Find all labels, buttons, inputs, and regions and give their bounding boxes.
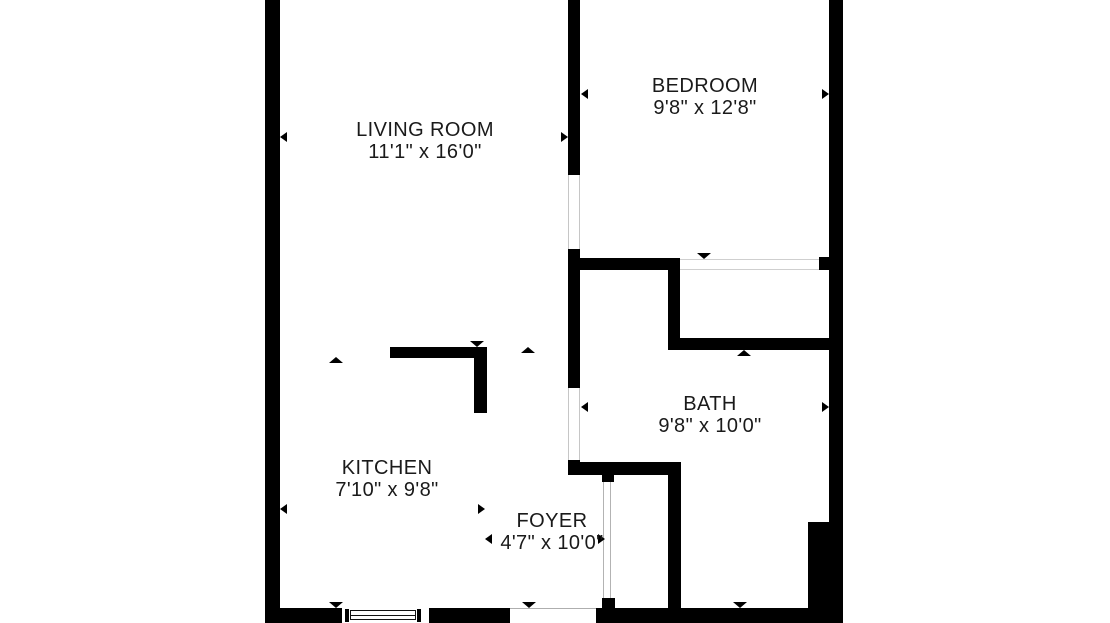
- room-name: KITCHEN: [287, 457, 487, 479]
- floor-plan: LIVING ROOM 11'1" x 16'0" BEDROOM 9'8" x…: [0, 0, 1110, 623]
- room-name: LIVING ROOM: [305, 119, 545, 141]
- wall-exterior-left: [265, 0, 280, 623]
- wall-foyer-closet-jamb-top: [602, 470, 614, 482]
- wall-kitchen-peninsula-vertical: [474, 347, 487, 413]
- dim-arrow-up-icon: [737, 350, 751, 356]
- window-glass: [350, 610, 416, 620]
- room-label-bath: BATH 9'8" x 10'0": [610, 393, 810, 437]
- wall-closet-front-stub: [568, 258, 680, 270]
- wall-utility-mass: [808, 522, 843, 623]
- wall-foyer-top: [568, 462, 681, 475]
- dim-arrow-up-icon: [521, 347, 535, 353]
- dim-arrow-right-icon: [822, 89, 829, 99]
- wall-divider-upper: [568, 0, 580, 175]
- dim-arrow-left-icon: [280, 504, 287, 514]
- dim-arrow-left-icon: [581, 89, 588, 99]
- room-name: BEDROOM: [605, 75, 805, 97]
- room-name: FOYER: [452, 510, 652, 532]
- wall-closet-jamb-right: [819, 257, 831, 270]
- dim-arrow-right-icon: [822, 402, 829, 412]
- wall-bath-top: [668, 338, 843, 350]
- bath-doorway-opening: [568, 388, 580, 460]
- room-dimensions: 7'10" x 9'8": [287, 479, 487, 501]
- dim-arrow-down-icon: [697, 253, 711, 259]
- dim-arrow-down-icon: [522, 602, 536, 608]
- closet-sliding-door: [680, 259, 819, 270]
- dim-arrow-down-icon: [470, 341, 484, 347]
- window-cap-left: [345, 609, 349, 622]
- room-label-kitchen: KITCHEN 7'10" x 9'8": [287, 457, 487, 501]
- dim-arrow-left-icon: [581, 402, 588, 412]
- wall-foyer-closet-jamb-bottom: [602, 598, 615, 608]
- room-label-bedroom: BEDROOM 9'8" x 12'8": [605, 75, 805, 119]
- window-cap-right: [417, 609, 421, 622]
- room-dimensions: 11'1" x 16'0": [305, 141, 545, 163]
- wall-kitchen-peninsula-horizontal: [390, 347, 485, 358]
- dim-arrow-up-icon: [329, 357, 343, 363]
- dim-arrow-down-icon: [329, 602, 343, 608]
- window-glass-midline: [351, 615, 415, 616]
- room-dimensions: 9'8" x 12'8": [605, 97, 805, 119]
- room-dimensions: 4'7" x 10'0": [452, 532, 652, 554]
- wall-closet-side: [668, 258, 680, 350]
- room-name: BATH: [610, 393, 810, 415]
- bedroom-doorway-opening: [568, 175, 580, 249]
- entry-door-opening: [510, 608, 596, 623]
- dim-arrow-right-icon: [561, 132, 568, 142]
- dim-arrow-left-icon: [280, 132, 287, 142]
- dim-arrow-down-icon: [733, 602, 747, 608]
- room-label-living-room: LIVING ROOM 11'1" x 16'0": [305, 119, 545, 163]
- room-dimensions: 9'8" x 10'0": [610, 415, 810, 437]
- wall-foyer-right: [668, 462, 681, 613]
- room-label-foyer: FOYER 4'7" x 10'0": [452, 510, 652, 554]
